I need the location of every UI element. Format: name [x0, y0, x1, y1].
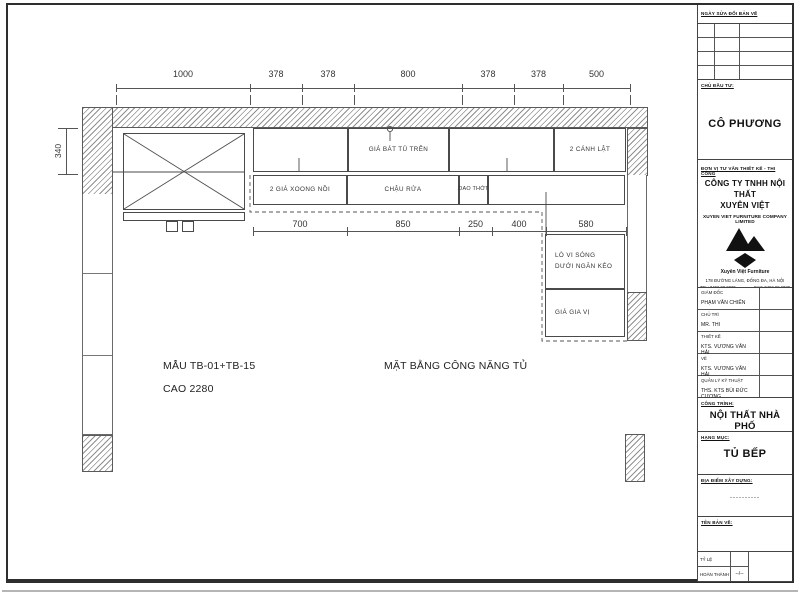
dim-tick [347, 227, 348, 236]
location-value: ---------- [701, 495, 789, 501]
scale-label: TỶ LỆ [698, 552, 731, 566]
dim-tick [253, 227, 254, 236]
upper-cabinet-dish-rack: GIÁ BÁT TỦ TRÊN [348, 128, 449, 172]
dim-label: 500 [563, 69, 630, 80]
revision-cell [715, 38, 740, 51]
cabinet-label: DAO THỚT [458, 185, 488, 194]
cabinet-label: LÒ VI SÓNGDƯỚI NGĂN KÉO [555, 251, 612, 272]
base-cabinet-cutting-board: DAO THỚT [459, 175, 488, 205]
wall-joint-line [83, 355, 112, 356]
revision-cell [698, 38, 715, 51]
investor-name: CÔ PHƯƠNG [701, 118, 789, 130]
plan-title: MẶT BẰNG CÔNG NĂNG TỦ [384, 360, 527, 372]
wall-top [82, 107, 648, 128]
dim-tick [563, 84, 564, 92]
investor-section: CHỦ ĐẦU TƯ: CÔ PHƯƠNG [698, 80, 792, 160]
hood-foot [182, 221, 194, 232]
wall-left-middle [82, 194, 113, 435]
revision-row [698, 52, 792, 66]
sheet-border-frame [6, 3, 794, 583]
cabinet-label: GIÁ BÁT TỦ TRÊN [369, 145, 429, 156]
revision-cell [698, 24, 715, 37]
revision-cell [740, 66, 792, 80]
category-label: HẠNG MỤC: [701, 435, 789, 440]
project-label: CÔNG TRÌNH: [701, 401, 789, 406]
dim-label: 1000 [116, 69, 250, 80]
revision-cell [740, 38, 792, 51]
personnel-row: THIẾT KẾKTS. VƯƠNG VĂN HẢI [698, 332, 792, 354]
dim-label: 378 [302, 69, 354, 80]
base-cabinet-plain [488, 175, 625, 205]
role-label: VẼ [701, 356, 756, 361]
logo-caption: Xuyên Việt Furniture [698, 269, 792, 275]
dim-label: 700 [253, 219, 347, 230]
company-name: CÔNG TY TNHH NỘI THẤT XUYÊN VIỆT [698, 179, 792, 211]
dim-tick [116, 84, 117, 92]
company-logo [698, 227, 792, 269]
dim-ext-line [514, 95, 515, 105]
dim-tick [58, 174, 78, 175]
role-label: CHỦ TRÌ [701, 312, 756, 317]
wall-right-corner [627, 128, 648, 176]
dim-tick [514, 84, 515, 92]
dim-tick [58, 128, 78, 129]
scale-completion-table: TỶ LỆ HOÀN THÀNH --/-- [698, 552, 792, 582]
personnel-row: QUẢN LÝ KỸ THUẬTTHS. KTS BÙI ĐỨC CƯƠNG [698, 376, 792, 398]
revision-row [698, 66, 792, 80]
signature-cell [759, 376, 792, 398]
base-cabinet-sink: CHẬU RỬA [347, 175, 459, 205]
revision-header-label: NGÀY SỬA ĐỔI BẢN VẼ [701, 11, 789, 16]
dim-tick [492, 227, 493, 236]
dim-ext-line [462, 95, 463, 105]
revision-header-section: NGÀY SỬA ĐỔI BẢN VẼ [698, 5, 792, 24]
project-section: CÔNG TRÌNH: NỘI THẤT NHÀ PHỐ [698, 398, 792, 432]
bottom-dimension-line [253, 231, 626, 232]
title-block: NGÀY SỬA ĐỔI BẢN VẼ CHỦ ĐẦU TƯ: CÔ PHƯƠN… [697, 5, 792, 582]
revision-table [698, 24, 792, 80]
consultant-label: ĐƠN VỊ TƯ VẤN THIẾT KẾ - THI CÔNG [701, 166, 789, 176]
company-address: 178 ĐƯỜNG LÁNG, ĐỐNG ĐA, HÀ NỘI [698, 278, 792, 283]
revision-row [698, 24, 792, 38]
dim-label: 400 [492, 219, 546, 230]
signature-cell [759, 288, 792, 309]
wall-right-lower [627, 292, 647, 341]
height-note: CAO 2280 [163, 383, 214, 395]
role-label: THIẾT KẾ [701, 334, 756, 339]
personnel-row: CHỦ TRÌMR. THI [698, 310, 792, 332]
dim-tick [250, 84, 251, 92]
hood-base-bar [123, 212, 245, 221]
dim-label-vertical: 340 [53, 138, 63, 164]
top-dimension-line [116, 88, 630, 89]
scale-value [731, 552, 749, 566]
dim-label: 580 [546, 219, 626, 230]
personnel-row: VẼKTS. VƯƠNG VĂN HẢI [698, 354, 792, 376]
signature-cell [759, 354, 792, 375]
revision-cell [715, 66, 740, 80]
wall-right-middle [627, 175, 647, 293]
xuyen-viet-logo-mark [723, 227, 767, 269]
model-note: MẪU TB-01+TB-15 [163, 360, 255, 372]
dim-label: 850 [347, 219, 459, 230]
hood-unit-box [123, 133, 245, 210]
dim-tick [302, 84, 303, 92]
cabinet-label: CHẬU RỬA [385, 185, 422, 196]
dim-tick [459, 227, 460, 236]
signature-cell [759, 332, 792, 353]
location-label: ĐỊA ĐIỂM XÂY DỰNG: [701, 478, 789, 483]
dim-tick [630, 84, 631, 92]
person-name: PHẠM VĂN CHIẾN [701, 300, 756, 306]
drawing-name-section: TÊN BẢN VẼ: [698, 517, 792, 552]
investor-label: CHỦ ĐẦU TƯ: [701, 83, 789, 88]
dim-label: 378 [514, 69, 563, 80]
company-section: ĐƠN VỊ TƯ VẤN THIẾT KẾ - THI CÔNG CÔNG T… [698, 160, 792, 288]
base-cabinet-pot-rack: 2 GIÁ XOONG NỒI [253, 175, 347, 205]
dim-ext-line [630, 95, 631, 105]
company-name-english: XUYEN VIET FURNITURE COMPANY LIMITED [698, 214, 792, 224]
role-label: QUẢN LÝ KỸ THUẬT [701, 378, 756, 383]
personnel-row: GIÁM ĐỐCPHẠM VĂN CHIẾN [698, 288, 792, 310]
project-name: NỘI THẤT NHÀ PHỐ [701, 410, 789, 432]
corner-unit-spice-rack: GIÁ GIA VỊ [545, 289, 625, 337]
dim-ext-line [116, 95, 117, 105]
upper-cabinet-plain [449, 128, 554, 172]
revision-cell [698, 66, 715, 80]
wall-right-bottom-pier [625, 434, 645, 482]
personnel-table: GIÁM ĐỐCPHẠM VĂN CHIẾN CHỦ TRÌMR. THI TH… [698, 288, 792, 398]
revision-row [698, 38, 792, 52]
completion-label: HOÀN THÀNH [698, 567, 731, 581]
notes-merged-cell [748, 552, 792, 581]
location-section: ĐỊA ĐIỂM XÂY DỰNG: ---------- [698, 475, 792, 517]
cabinet-label: GIÁ GIA VỊ [555, 308, 590, 319]
dim-label: 250 [459, 219, 492, 230]
wall-left-upper [82, 107, 113, 195]
role-label: GIÁM ĐỐC [701, 290, 756, 295]
revision-cell [715, 24, 740, 37]
category-section: HẠNG MỤC: TỦ BẾP [698, 432, 792, 475]
sheet-edge-shadow [2, 590, 798, 592]
person-name: MR. THI [701, 322, 756, 328]
dim-label: 800 [354, 69, 462, 80]
cabinet-label: 2 GIÁ XOONG NỒI [270, 185, 330, 196]
wall-joint-line [83, 273, 112, 274]
drawing-name-label: TÊN BẢN VẼ: [701, 520, 789, 525]
drawing-sheet: 1000 378 378 800 378 378 500 340 GIÁ BÁT… [0, 0, 800, 595]
upper-cabinet-flip-doors: 2 CÁNH LẬT [554, 128, 626, 172]
dim-label: 378 [250, 69, 302, 80]
revision-cell [715, 52, 740, 65]
dim-tick [546, 227, 547, 236]
revision-cell [698, 52, 715, 65]
revision-cell [740, 24, 792, 37]
dim-ext-line [302, 95, 303, 105]
dim-tick [354, 84, 355, 92]
dim-label: 378 [462, 69, 514, 80]
cabinet-label: 2 CÁNH LẬT [570, 145, 610, 156]
upper-cabinet-plain [253, 128, 348, 172]
completion-value: --/-- [731, 567, 749, 581]
hood-foot [166, 221, 178, 232]
dim-ext-line [250, 95, 251, 105]
left-dimension-line [66, 128, 67, 174]
corner-unit-microwave: LÒ VI SÓNGDƯỚI NGĂN KÉO [545, 234, 625, 289]
dim-tick [626, 227, 627, 236]
dim-ext-line [354, 95, 355, 105]
category-name: TỦ BẾP [701, 448, 789, 460]
dim-tick [462, 84, 463, 92]
person-name: THS. KTS BÙI ĐỨC CƯƠNG [701, 388, 756, 399]
signature-cell [759, 310, 792, 331]
revision-cell [740, 52, 792, 65]
dim-ext-line [563, 95, 564, 105]
wall-left-bottom [82, 435, 113, 472]
